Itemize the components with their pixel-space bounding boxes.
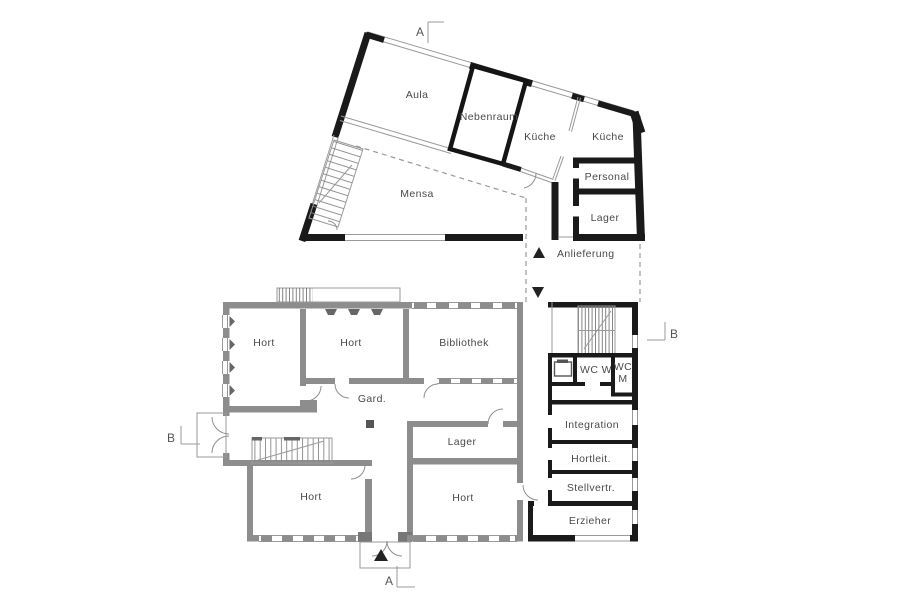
room-label-nebenraum: Nebenraum — [460, 111, 518, 123]
hort-nw-walls — [223, 309, 321, 413]
room-label-lager-hort: Lager — [448, 436, 477, 448]
section-marker-b-left: B — [167, 426, 200, 445]
south-entrance-porch — [360, 541, 410, 568]
mensa-building — [302, 32, 645, 302]
room-label-garderobe: Gard. — [358, 393, 386, 405]
interior-staircase — [252, 437, 332, 463]
hort-sw-walls — [223, 460, 372, 535]
room-label-lager-mensa: Lager — [591, 212, 620, 224]
west-entrance-porch — [197, 413, 229, 457]
hort-north-wall — [223, 302, 523, 309]
room-label-personal: Personal — [585, 171, 630, 183]
shaft-fixture — [555, 362, 572, 376]
section-letter: A — [416, 25, 424, 39]
hort-south-wall — [247, 532, 523, 542]
room-label-integration: Integration — [565, 419, 619, 431]
room-label-wc-m-2: M — [618, 373, 627, 385]
mensa-east-wall — [637, 116, 642, 240]
section-letter: B — [167, 431, 175, 445]
section-letter: A — [385, 574, 393, 588]
room-label-hortleitung: Hortleit. — [571, 453, 611, 465]
annex-south-wall — [528, 535, 638, 542]
room-label-wc-w: WC W — [580, 364, 612, 376]
room-label-kueche-ost: Küche — [592, 131, 624, 143]
delivery-corridor: Anlieferung — [532, 247, 615, 298]
delivery-label: Anlieferung — [557, 248, 615, 260]
hort-building — [197, 288, 538, 568]
bibliothek-walls — [412, 302, 523, 398]
section-marker-b-right: B — [647, 322, 678, 341]
room-label-wc-m-1: WC — [614, 361, 632, 373]
room-label-hort-nw: Hort — [253, 337, 274, 349]
arrow-up-icon — [533, 247, 545, 258]
section-letter: B — [670, 327, 678, 341]
lager-old-walls — [407, 383, 538, 535]
room-label-hort-sw: Hort — [300, 491, 321, 503]
garderobe-column — [366, 420, 374, 428]
room-label-erzieher: Erzieher — [569, 515, 611, 527]
annex-staircase — [552, 302, 615, 355]
room-label-stellvertretung: Stellvertr. — [567, 482, 615, 494]
section-marker-a-bottom: A — [385, 566, 415, 588]
room-label-mensa: Mensa — [400, 188, 434, 200]
room-label-kueche-west: Küche — [524, 131, 556, 143]
floor-plan-drawing: Anlieferung — [0, 0, 900, 598]
floor-plan-page: Anlieferung — [0, 0, 900, 598]
arrow-down-icon — [532, 287, 544, 298]
room-label-aula: Aula — [406, 89, 429, 101]
room-label-hort-n: Hort — [340, 337, 361, 349]
hort-n-walls — [306, 309, 412, 398]
room-label-hort-se: Hort — [452, 492, 473, 504]
room-label-bibliothek: Bibliothek — [439, 337, 489, 349]
section-marker-a-top: A — [416, 22, 444, 43]
exterior-stair — [277, 288, 400, 302]
